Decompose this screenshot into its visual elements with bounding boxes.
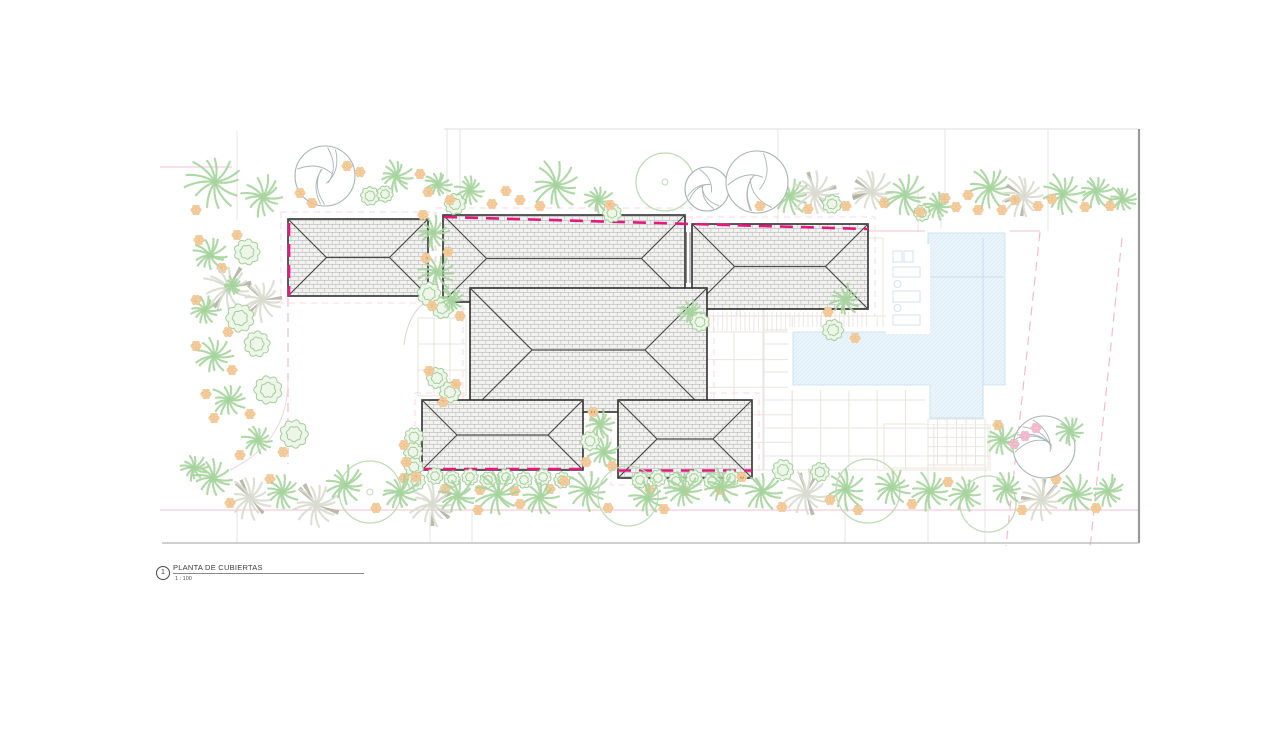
- orange-flower: [659, 504, 670, 514]
- orange-flower: [1091, 503, 1102, 513]
- orange-flower: [1033, 201, 1044, 211]
- orange-flower: [307, 198, 318, 208]
- view-scale: 1 : 100: [173, 576, 364, 582]
- orange-flower: [415, 169, 426, 179]
- orange-flower: [401, 457, 412, 467]
- orange-flower: [265, 474, 276, 484]
- orange-flower: [1047, 194, 1058, 204]
- orange-flower: [755, 201, 766, 211]
- orange-flower: [535, 201, 546, 211]
- palm-plant: [876, 471, 910, 504]
- palm-plant: [242, 427, 272, 455]
- orange-flower: [371, 503, 382, 513]
- orange-flower: [278, 447, 289, 457]
- deciduous-tree: [295, 146, 355, 206]
- palm-plant: [1059, 475, 1092, 510]
- orange-flower: [201, 389, 212, 399]
- orange-flower: [943, 477, 954, 487]
- orange-flower: [879, 198, 890, 208]
- view-number-badge: 1: [156, 566, 170, 580]
- orange-flower: [421, 253, 432, 263]
- orange-flower: [245, 409, 256, 419]
- palm-plant: [829, 468, 862, 510]
- view-title: PLANTA DE CUBIERTAS: [173, 563, 364, 572]
- palm-plant: [214, 386, 245, 414]
- orange-flower: [399, 440, 410, 450]
- orange-flower: [443, 247, 454, 257]
- pink-flower: [1009, 439, 1020, 449]
- orange-flower: [607, 461, 618, 471]
- orange-flower: [515, 499, 526, 509]
- palm-plant: [185, 158, 240, 208]
- title-text-group: PLANTA DE CUBIERTAS 1 : 100: [173, 563, 364, 582]
- palm-plant: [949, 477, 981, 512]
- orange-flower: [997, 205, 1008, 215]
- orange-flower: [853, 505, 864, 515]
- palm-plant: [181, 456, 209, 481]
- orange-flower: [355, 167, 366, 177]
- palm-plant: [241, 175, 282, 217]
- roofs: [288, 215, 868, 478]
- orange-flower: [191, 205, 202, 215]
- orange-flower: [418, 210, 429, 220]
- palm-plant: [1094, 475, 1123, 506]
- orange-flower: [342, 161, 353, 171]
- view-number: 1: [161, 569, 165, 576]
- orange-flower: [232, 230, 243, 240]
- pink-flower: [1020, 431, 1031, 441]
- palm-plant: [742, 474, 782, 510]
- orange-flower: [295, 188, 306, 198]
- hip-roof: [618, 400, 752, 478]
- orange-flower: [841, 201, 852, 211]
- title-underline: [173, 573, 364, 574]
- orange-flower: [603, 503, 614, 513]
- orange-flower: [501, 186, 512, 196]
- deciduous-tree: [685, 167, 729, 211]
- orange-flower: [451, 379, 462, 389]
- drawing-sheet: 1 PLANTA DE CUBIERTAS 1 : 100: [0, 0, 1280, 731]
- pale-palm-plant: [230, 478, 270, 520]
- orange-flower: [1010, 195, 1021, 205]
- orange-flower: [191, 295, 202, 305]
- orange-flower: [191, 341, 202, 351]
- orange-flower: [737, 472, 748, 482]
- orange-flower: [605, 200, 616, 210]
- orange-flower: [823, 307, 834, 317]
- orange-flower: [227, 365, 238, 375]
- orange-flower: [1080, 202, 1091, 212]
- orange-flower: [963, 190, 974, 200]
- orange-flower: [424, 366, 435, 376]
- orange-flower: [1017, 505, 1028, 515]
- hip-roof: [470, 288, 707, 412]
- palm-plant: [569, 472, 606, 512]
- orange-flower: [850, 333, 861, 343]
- orange-flower: [825, 495, 836, 505]
- palm-plant: [534, 161, 576, 207]
- pool-loungers: [886, 244, 930, 334]
- pale-palm-plant: [294, 483, 340, 527]
- orange-flower: [915, 207, 926, 217]
- orange-flower: [907, 499, 918, 509]
- orange-flower: [951, 202, 962, 212]
- hip-roof: [422, 400, 583, 470]
- orange-flower: [223, 327, 234, 337]
- pink-flower: [1031, 423, 1042, 433]
- orange-flower: [423, 187, 434, 197]
- orange-flower: [209, 413, 220, 423]
- canopy-outline-tree: [636, 153, 694, 211]
- orange-flower: [225, 498, 236, 508]
- orange-flower: [581, 457, 592, 467]
- orange-flower: [427, 301, 438, 311]
- title-block: 1 PLANTA DE CUBIERTAS 1 : 100: [156, 563, 364, 582]
- orange-flower: [559, 476, 570, 486]
- orange-flower: [235, 450, 246, 460]
- palm-plant: [912, 472, 948, 511]
- orange-flower: [487, 199, 498, 209]
- roof-plan-drawing: [0, 0, 1280, 731]
- orange-flower: [455, 311, 466, 321]
- orange-flower: [1105, 201, 1116, 211]
- orange-flower: [973, 205, 984, 215]
- orange-flower: [940, 193, 951, 203]
- orange-flower: [777, 502, 788, 512]
- palm-plant: [196, 338, 233, 371]
- hip-roof: [288, 219, 428, 296]
- orange-flower: [803, 204, 814, 214]
- orange-flower: [445, 195, 456, 205]
- orange-flower: [588, 407, 599, 417]
- orange-flower: [194, 235, 205, 245]
- orange-flower: [993, 420, 1004, 430]
- orange-flower: [515, 195, 526, 205]
- pale-palm-plant: [1019, 479, 1062, 522]
- orange-flower: [438, 397, 449, 407]
- orange-flower: [411, 472, 422, 482]
- orange-flower: [473, 505, 484, 515]
